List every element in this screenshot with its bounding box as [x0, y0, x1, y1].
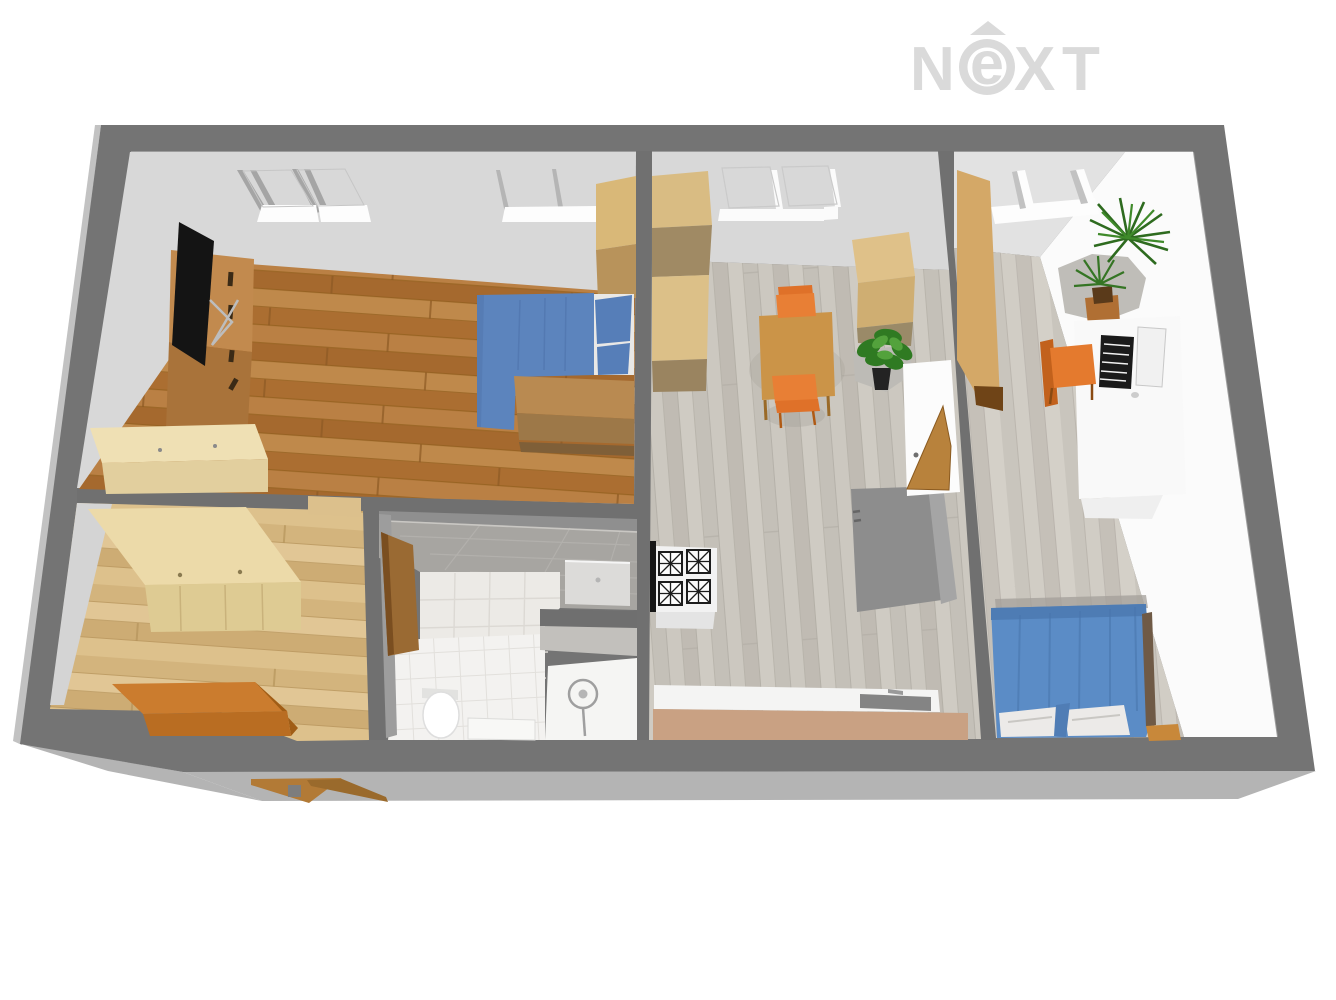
svg-text:N: N [910, 35, 955, 104]
svg-text:e: e [970, 29, 1004, 97]
svg-text:X: X [1014, 35, 1055, 104]
svg-text:T: T [1062, 35, 1100, 104]
